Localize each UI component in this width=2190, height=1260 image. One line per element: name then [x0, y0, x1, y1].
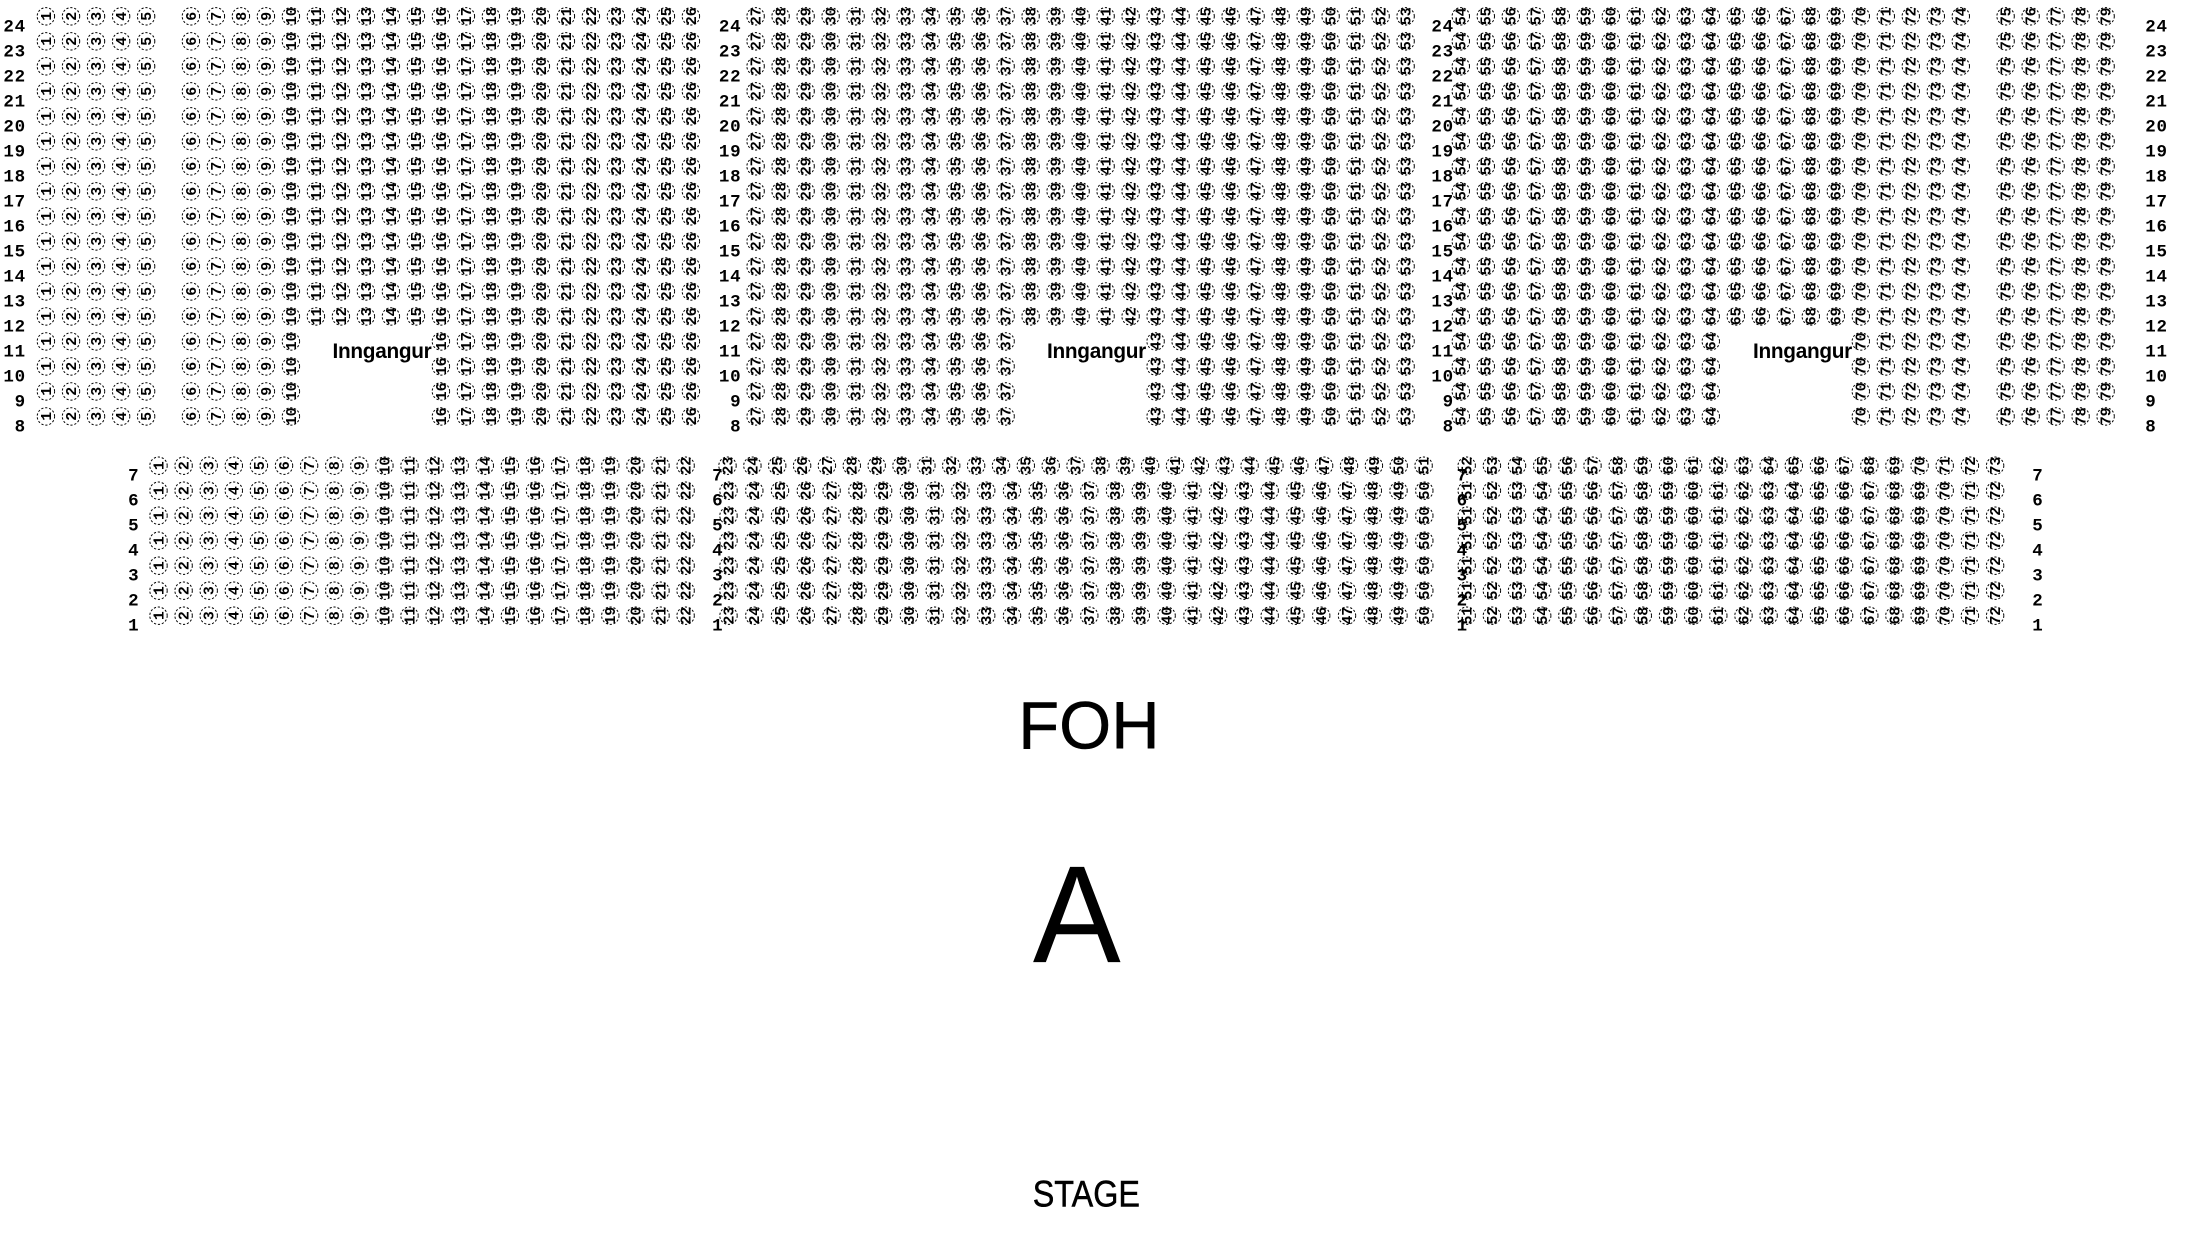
svg-text:77: 77	[2050, 108, 2066, 126]
svg-text:15: 15	[410, 7, 426, 25]
svg-text:3: 3	[90, 12, 106, 21]
svg-text:59: 59	[1580, 157, 1596, 175]
svg-text:66: 66	[1755, 82, 1771, 100]
svg-text:34: 34	[925, 382, 941, 400]
svg-text:67: 67	[1780, 258, 1796, 276]
svg-text:27: 27	[750, 133, 766, 151]
svg-text:74: 74	[1955, 82, 1971, 100]
svg-text:37: 37	[1083, 557, 1099, 575]
svg-text:42: 42	[1125, 7, 1141, 25]
svg-text:76: 76	[2025, 407, 2041, 425]
svg-text:62: 62	[1655, 332, 1671, 350]
svg-text:66: 66	[1838, 582, 1854, 600]
svg-text:37: 37	[1000, 83, 1016, 101]
svg-text:5: 5	[253, 486, 269, 495]
svg-text:17: 17	[554, 582, 570, 600]
svg-text:13: 13	[360, 57, 376, 75]
svg-text:28: 28	[775, 82, 791, 100]
svg-text:33: 33	[900, 107, 916, 125]
svg-text:36: 36	[975, 257, 991, 275]
svg-text:52: 52	[1375, 107, 1391, 125]
svg-text:31: 31	[850, 107, 866, 125]
svg-text:29: 29	[877, 582, 893, 600]
svg-text:70: 70	[1855, 207, 1871, 225]
svg-text:40: 40	[1075, 282, 1091, 300]
svg-text:33: 33	[900, 407, 916, 425]
svg-text:30: 30	[825, 82, 841, 100]
svg-text:48: 48	[1275, 307, 1291, 325]
svg-text:38: 38	[1025, 157, 1041, 175]
svg-text:18: 18	[579, 557, 595, 575]
svg-text:36: 36	[1057, 557, 1073, 575]
svg-text:61: 61	[1630, 157, 1646, 175]
svg-text:52: 52	[1375, 57, 1391, 75]
svg-text:11: 11	[310, 157, 326, 175]
svg-text:55: 55	[1480, 307, 1496, 325]
svg-text:5: 5	[140, 387, 156, 396]
svg-text:60: 60	[1605, 57, 1621, 75]
svg-text:49: 49	[1300, 407, 1316, 425]
svg-text:50: 50	[1325, 282, 1341, 300]
svg-text:32: 32	[875, 282, 891, 300]
svg-text:63: 63	[1680, 32, 1696, 50]
svg-text:4: 4	[115, 237, 131, 246]
svg-text:40: 40	[1075, 32, 1091, 50]
svg-text:2: 2	[178, 511, 194, 520]
svg-text:76: 76	[2025, 282, 2041, 300]
svg-text:20: 20	[3, 117, 26, 137]
svg-text:31: 31	[920, 457, 936, 475]
svg-text:41: 41	[1100, 307, 1116, 325]
svg-text:79: 79	[2100, 307, 2116, 325]
svg-text:50: 50	[1325, 257, 1341, 275]
svg-text:30: 30	[903, 532, 919, 550]
svg-text:16: 16	[435, 82, 451, 100]
svg-text:30: 30	[825, 407, 841, 425]
svg-text:76: 76	[2025, 382, 2041, 400]
svg-text:9: 9	[260, 387, 276, 396]
svg-text:66: 66	[1838, 557, 1854, 575]
svg-text:36: 36	[975, 407, 991, 425]
svg-text:63: 63	[1680, 207, 1696, 225]
svg-text:40: 40	[1075, 7, 1091, 25]
svg-text:64: 64	[1763, 457, 1779, 475]
svg-text:6: 6	[185, 387, 201, 396]
svg-text:19: 19	[510, 182, 526, 200]
svg-text:61: 61	[1712, 582, 1728, 600]
svg-text:58: 58	[1555, 82, 1571, 100]
svg-text:39: 39	[1135, 507, 1151, 525]
svg-text:37: 37	[1000, 133, 1016, 151]
svg-text:1: 1	[40, 87, 56, 96]
svg-text:65: 65	[1730, 32, 1746, 50]
svg-text:22: 22	[585, 232, 601, 250]
svg-text:51: 51	[1350, 57, 1366, 75]
svg-text:39: 39	[1135, 557, 1151, 575]
svg-text:48: 48	[1367, 482, 1383, 500]
svg-text:38: 38	[1094, 457, 1110, 475]
svg-text:78: 78	[2075, 82, 2091, 100]
svg-text:26: 26	[685, 357, 701, 375]
svg-text:75: 75	[2000, 382, 2016, 400]
svg-text:16: 16	[435, 257, 451, 275]
svg-text:2: 2	[178, 561, 194, 570]
svg-text:57: 57	[1530, 8, 1546, 26]
svg-text:59: 59	[1580, 332, 1596, 350]
svg-text:8: 8	[235, 287, 251, 296]
svg-text:26: 26	[685, 307, 701, 325]
svg-text:19: 19	[510, 282, 526, 300]
svg-text:20: 20	[535, 7, 551, 25]
svg-text:6: 6	[185, 37, 201, 46]
svg-text:72: 72	[1905, 257, 1921, 275]
svg-text:24: 24	[635, 32, 651, 50]
svg-text:50: 50	[1325, 7, 1341, 25]
svg-text:73: 73	[1930, 357, 1946, 375]
svg-text:70: 70	[1855, 332, 1871, 350]
svg-text:36: 36	[975, 307, 991, 325]
svg-text:60: 60	[1687, 482, 1703, 500]
svg-text:71: 71	[1880, 107, 1896, 125]
svg-text:19: 19	[510, 132, 526, 150]
svg-text:1: 1	[1457, 617, 1468, 637]
svg-text:65: 65	[1813, 582, 1829, 600]
svg-text:32: 32	[954, 607, 970, 625]
svg-text:26: 26	[685, 32, 701, 50]
svg-text:53: 53	[1400, 7, 1416, 25]
svg-text:35: 35	[1032, 557, 1048, 575]
svg-text:72: 72	[1905, 282, 1921, 300]
svg-text:60: 60	[1605, 207, 1621, 225]
svg-text:49: 49	[1368, 457, 1384, 475]
svg-text:71: 71	[1880, 57, 1896, 75]
svg-text:15: 15	[410, 307, 426, 325]
svg-text:4: 4	[115, 387, 131, 396]
svg-text:63: 63	[1680, 257, 1696, 275]
svg-text:73: 73	[1930, 232, 1946, 250]
svg-text:48: 48	[1367, 582, 1383, 600]
svg-text:75: 75	[2000, 357, 2016, 375]
svg-text:50: 50	[1418, 532, 1434, 550]
svg-text:79: 79	[2100, 182, 2116, 200]
svg-text:15: 15	[3, 242, 26, 262]
svg-text:34: 34	[925, 257, 941, 275]
svg-text:49: 49	[1392, 607, 1408, 625]
svg-text:38: 38	[1109, 582, 1125, 600]
svg-text:41: 41	[1169, 457, 1185, 475]
svg-text:19: 19	[604, 557, 620, 575]
svg-text:26: 26	[685, 407, 701, 425]
svg-text:41: 41	[1186, 482, 1202, 500]
svg-text:29: 29	[800, 82, 816, 100]
svg-text:45: 45	[1200, 107, 1216, 125]
svg-text:57: 57	[1612, 482, 1628, 500]
svg-text:3: 3	[203, 486, 219, 495]
svg-text:Inngangur: Inngangur	[1753, 340, 1852, 363]
svg-text:67: 67	[1780, 58, 1796, 76]
svg-text:33: 33	[900, 232, 916, 250]
svg-text:59: 59	[1580, 107, 1596, 125]
svg-text:26: 26	[796, 457, 812, 475]
svg-text:51: 51	[1350, 307, 1366, 325]
svg-text:56: 56	[1561, 457, 1577, 475]
svg-text:34: 34	[1006, 507, 1022, 525]
svg-text:23: 23	[610, 182, 626, 200]
svg-text:75: 75	[2000, 207, 2016, 225]
svg-text:63: 63	[1680, 382, 1696, 400]
svg-text:31: 31	[850, 282, 866, 300]
svg-text:45: 45	[1200, 182, 1216, 200]
svg-text:36: 36	[975, 32, 991, 50]
svg-text:34: 34	[925, 357, 941, 375]
svg-text:A: A	[1033, 837, 1121, 992]
svg-text:29: 29	[877, 507, 893, 525]
svg-text:67: 67	[1780, 108, 1796, 126]
svg-text:16: 16	[435, 382, 451, 400]
svg-text:9: 9	[260, 212, 276, 221]
svg-text:30: 30	[903, 607, 919, 625]
svg-text:24: 24	[635, 207, 651, 225]
svg-text:48: 48	[1367, 507, 1383, 525]
svg-text:62: 62	[1655, 407, 1671, 425]
svg-text:12: 12	[335, 157, 351, 175]
svg-text:67: 67	[1780, 133, 1796, 151]
svg-text:33: 33	[900, 382, 916, 400]
svg-text:26: 26	[685, 157, 701, 175]
svg-text:18: 18	[579, 457, 595, 475]
svg-text:50: 50	[1325, 32, 1341, 50]
svg-text:39: 39	[1050, 82, 1066, 100]
svg-text:24: 24	[635, 132, 651, 150]
svg-text:7: 7	[210, 212, 226, 221]
svg-text:69: 69	[1888, 457, 1904, 475]
svg-text:67: 67	[1863, 482, 1879, 500]
svg-text:17: 17	[460, 8, 476, 26]
svg-text:44: 44	[1175, 32, 1191, 50]
svg-text:46: 46	[1225, 32, 1241, 50]
svg-text:36: 36	[975, 282, 991, 300]
svg-text:17: 17	[460, 408, 476, 426]
svg-text:43: 43	[1150, 257, 1166, 275]
svg-text:22: 22	[585, 357, 601, 375]
svg-text:13: 13	[360, 7, 376, 25]
svg-text:39: 39	[1050, 157, 1066, 175]
svg-text:6: 6	[278, 611, 294, 620]
svg-text:25: 25	[771, 457, 787, 475]
svg-text:58: 58	[1555, 57, 1571, 75]
svg-text:42: 42	[1125, 157, 1141, 175]
svg-text:74: 74	[1955, 132, 1971, 150]
svg-text:16: 16	[435, 132, 451, 150]
svg-text:19: 19	[510, 332, 526, 350]
svg-text:62: 62	[1655, 107, 1671, 125]
svg-text:60: 60	[1605, 132, 1621, 150]
svg-text:21: 21	[654, 457, 670, 475]
svg-text:32: 32	[954, 507, 970, 525]
svg-text:39: 39	[1050, 282, 1066, 300]
svg-text:3: 3	[90, 87, 106, 96]
svg-text:39: 39	[1050, 207, 1066, 225]
svg-text:72: 72	[1989, 582, 2005, 600]
svg-text:28: 28	[851, 607, 867, 625]
svg-text:48: 48	[1343, 457, 1359, 475]
svg-text:3: 3	[128, 567, 139, 587]
svg-text:74: 74	[1955, 307, 1971, 325]
svg-text:66: 66	[1838, 532, 1854, 550]
svg-text:53: 53	[1511, 607, 1527, 625]
svg-text:2: 2	[178, 486, 194, 495]
svg-text:35: 35	[1032, 507, 1048, 525]
svg-text:26: 26	[685, 57, 701, 75]
svg-text:39: 39	[1050, 307, 1066, 325]
svg-text:76: 76	[2025, 307, 2041, 325]
svg-text:10: 10	[285, 307, 301, 325]
svg-text:73: 73	[1930, 307, 1946, 325]
svg-text:53: 53	[1400, 307, 1416, 325]
svg-text:5: 5	[128, 517, 139, 537]
svg-text:60: 60	[1605, 182, 1621, 200]
svg-text:21: 21	[560, 282, 576, 300]
svg-text:54: 54	[1455, 282, 1471, 300]
svg-text:22: 22	[585, 207, 601, 225]
svg-text:65: 65	[1730, 132, 1746, 150]
svg-text:8: 8	[2145, 417, 2156, 437]
svg-text:76: 76	[2025, 207, 2041, 225]
svg-text:28: 28	[775, 207, 791, 225]
svg-text:15: 15	[410, 57, 426, 75]
svg-text:52: 52	[1486, 582, 1502, 600]
svg-text:40: 40	[1075, 82, 1091, 100]
svg-text:44: 44	[1175, 7, 1191, 25]
svg-text:2: 2	[65, 62, 81, 71]
svg-text:1: 1	[40, 12, 56, 21]
svg-text:20: 20	[535, 407, 551, 425]
svg-text:27: 27	[750, 258, 766, 276]
svg-text:22: 22	[585, 182, 601, 200]
svg-text:4: 4	[115, 87, 131, 96]
svg-text:69: 69	[1830, 82, 1846, 100]
svg-text:16: 16	[435, 57, 451, 75]
svg-text:41: 41	[1100, 32, 1116, 50]
svg-text:3: 3	[90, 312, 106, 321]
svg-text:74: 74	[1955, 107, 1971, 125]
svg-text:18: 18	[485, 107, 501, 125]
svg-text:40: 40	[1075, 157, 1091, 175]
svg-text:74: 74	[1955, 257, 1971, 275]
svg-text:59: 59	[1580, 7, 1596, 25]
svg-text:7: 7	[712, 467, 723, 487]
svg-text:61: 61	[1630, 7, 1646, 25]
svg-text:15: 15	[410, 82, 426, 100]
svg-text:12: 12	[335, 232, 351, 250]
svg-text:69: 69	[1830, 7, 1846, 25]
svg-text:7: 7	[303, 561, 319, 570]
svg-text:2: 2	[65, 287, 81, 296]
svg-text:33: 33	[980, 607, 996, 625]
svg-text:18: 18	[719, 167, 742, 187]
svg-text:51: 51	[1350, 207, 1366, 225]
svg-text:54: 54	[1455, 82, 1471, 100]
svg-text:15: 15	[504, 482, 520, 500]
svg-text:57: 57	[1530, 133, 1546, 151]
svg-text:48: 48	[1275, 382, 1291, 400]
svg-text:64: 64	[1705, 382, 1721, 400]
svg-text:44: 44	[1175, 357, 1191, 375]
svg-text:43: 43	[1238, 532, 1254, 550]
svg-text:79: 79	[2100, 157, 2116, 175]
svg-text:21: 21	[560, 407, 576, 425]
svg-text:60: 60	[1605, 7, 1621, 25]
svg-text:1: 1	[128, 617, 139, 637]
svg-text:34: 34	[1006, 482, 1022, 500]
svg-text:25: 25	[660, 182, 676, 200]
svg-text:64: 64	[1788, 482, 1804, 500]
svg-text:49: 49	[1300, 257, 1316, 275]
svg-text:35: 35	[950, 357, 966, 375]
svg-text:71: 71	[1964, 582, 1980, 600]
svg-text:58: 58	[1555, 307, 1571, 325]
svg-text:46: 46	[1315, 607, 1331, 625]
svg-text:4: 4	[115, 262, 131, 271]
svg-text:61: 61	[1630, 382, 1646, 400]
svg-text:2: 2	[2032, 592, 2043, 612]
svg-text:76: 76	[2025, 82, 2041, 100]
svg-text:47: 47	[1250, 133, 1266, 151]
svg-text:34: 34	[925, 107, 941, 125]
svg-text:21: 21	[654, 582, 670, 600]
svg-text:26: 26	[685, 132, 701, 150]
svg-text:4: 4	[228, 561, 244, 570]
svg-text:73: 73	[1930, 57, 1946, 75]
svg-text:9: 9	[353, 536, 369, 545]
svg-text:61: 61	[1712, 607, 1728, 625]
svg-text:9: 9	[353, 611, 369, 620]
svg-text:72: 72	[1905, 232, 1921, 250]
svg-text:5: 5	[253, 561, 269, 570]
svg-text:47: 47	[1341, 507, 1357, 525]
svg-text:65: 65	[1813, 532, 1829, 550]
svg-text:6: 6	[2032, 492, 2043, 512]
svg-text:19: 19	[3, 142, 26, 162]
svg-text:15: 15	[504, 507, 520, 525]
svg-text:17: 17	[460, 308, 476, 326]
svg-text:21: 21	[560, 307, 576, 325]
svg-text:34: 34	[1006, 532, 1022, 550]
svg-text:22: 22	[2145, 67, 2168, 87]
svg-text:3: 3	[90, 412, 106, 421]
svg-text:73: 73	[1930, 7, 1946, 25]
svg-text:32: 32	[875, 357, 891, 375]
svg-text:34: 34	[925, 332, 941, 350]
svg-text:16: 16	[529, 532, 545, 550]
svg-text:70: 70	[1939, 482, 1955, 500]
svg-text:39: 39	[1050, 257, 1066, 275]
svg-text:41: 41	[1186, 557, 1202, 575]
svg-text:39: 39	[1050, 232, 1066, 250]
svg-text:48: 48	[1275, 7, 1291, 25]
svg-text:69: 69	[1830, 57, 1846, 75]
svg-text:35: 35	[950, 207, 966, 225]
svg-text:49: 49	[1392, 582, 1408, 600]
svg-text:74: 74	[1955, 32, 1971, 50]
svg-text:47: 47	[1250, 233, 1266, 251]
svg-text:1: 1	[152, 611, 168, 620]
svg-text:45: 45	[1289, 582, 1305, 600]
svg-text:8: 8	[235, 162, 251, 171]
svg-text:18: 18	[485, 7, 501, 25]
svg-text:44: 44	[1175, 207, 1191, 225]
svg-text:57: 57	[1612, 557, 1628, 575]
